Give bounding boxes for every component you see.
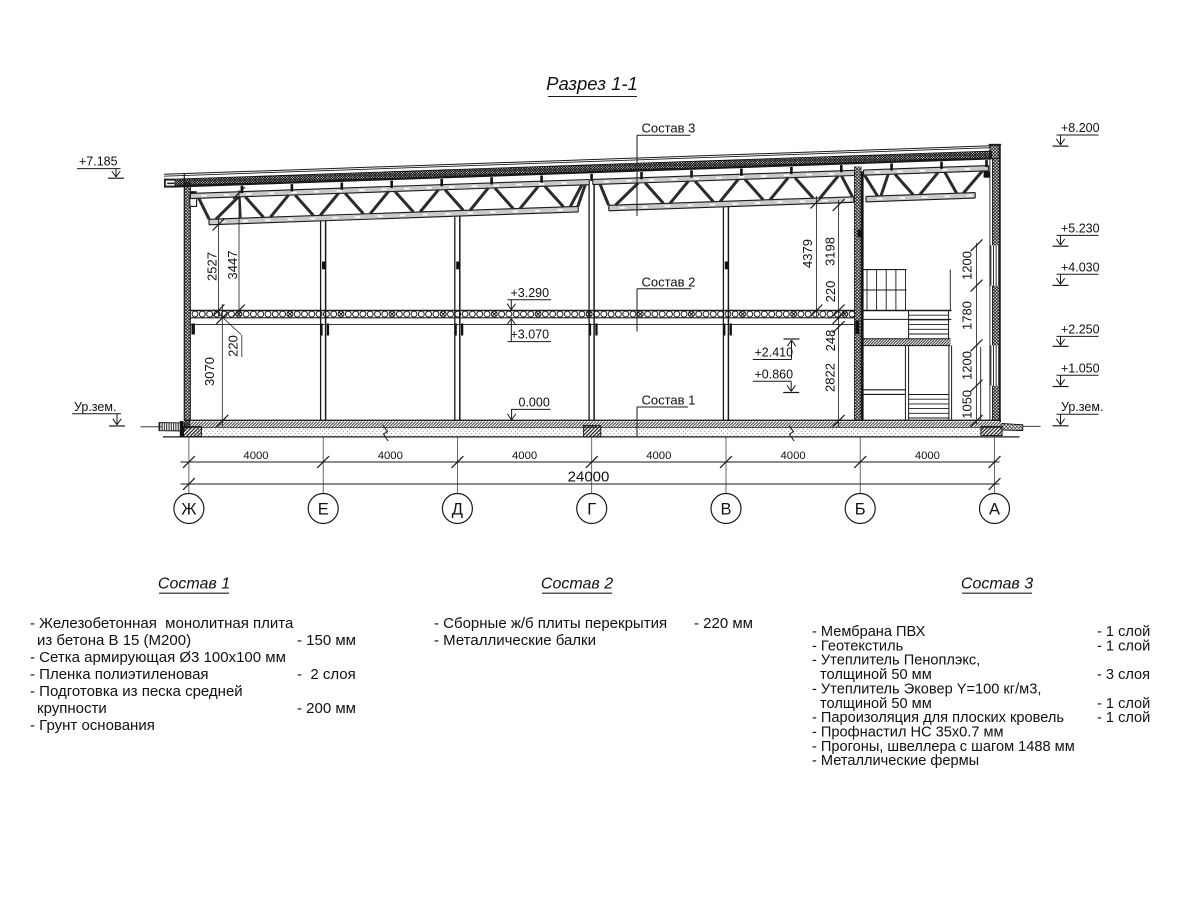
svg-text:4379: 4379 [800,239,815,268]
svg-text:+5.230: +5.230 [1061,221,1100,235]
svg-text:1200: 1200 [960,351,975,380]
svg-text:4000: 4000 [512,450,537,462]
svg-text:Состав 3: Состав 3 [961,576,1033,593]
svg-text:В: В [720,500,731,518]
svg-text:Состав 1: Состав 1 [642,393,696,408]
svg-text:- Металлические балки: - Металлические балки [434,632,596,649]
svg-text:- 3 слоя: - 3 слоя [1097,667,1150,683]
svg-text:А: А [989,500,1000,518]
svg-text:2527: 2527 [205,252,220,281]
svg-text:220: 220 [823,281,838,303]
svg-text:+3.290: +3.290 [511,286,550,300]
svg-text:- 220 мм: - 220 мм [694,615,753,632]
svg-text:Состав 2: Состав 2 [541,576,613,593]
svg-text:- Грунт основания: - Грунт основания [30,717,155,734]
svg-text:Состав 1: Состав 1 [158,576,230,593]
svg-text:4000: 4000 [781,450,806,462]
svg-text:3447: 3447 [225,251,240,280]
svg-text:1780: 1780 [960,301,975,330]
svg-text:1050: 1050 [960,390,975,419]
svg-text:- Сетка армирующая Ø3 100х100: - Сетка армирующая Ø3 100х100 мм [30,649,286,666]
svg-text:из бетона В 15 (М200): из бетона В 15 (М200) [37,632,191,649]
svg-text:4000: 4000 [243,450,268,462]
svg-text:- 1 слой: - 1 слой [1097,710,1150,726]
svg-text:+7.185: +7.185 [79,155,118,169]
svg-text:4000: 4000 [915,450,940,462]
svg-text:Ур.зем.: Ур.зем. [1061,400,1103,414]
svg-text:крупности: крупности [37,700,107,717]
svg-text:- Подготовка из песка средней: - Подготовка из песка средней [30,683,243,700]
svg-text:Д: Д [452,500,463,518]
svg-text:+3.070: +3.070 [511,328,550,342]
svg-text:Ж: Ж [181,500,197,518]
svg-text:Состав 2: Состав 2 [642,275,696,290]
svg-text:+1.050: +1.050 [1061,361,1100,375]
svg-text:Б: Б [855,500,866,518]
svg-text:4000: 4000 [646,450,671,462]
svg-text:- 2 слоя: - 2 слоя [297,666,356,683]
svg-text:+8.200: +8.200 [1061,121,1100,135]
svg-text:1200: 1200 [960,251,975,280]
svg-text:+4.030: +4.030 [1061,260,1100,274]
svg-text:- 1 слой: - 1 слой [1097,638,1150,654]
svg-text:2822: 2822 [823,363,838,392]
svg-text:3070: 3070 [202,357,217,386]
svg-text:- 200 мм: - 200 мм [297,700,356,717]
svg-text:+0.860: +0.860 [755,367,794,381]
svg-text:0.000: 0.000 [519,395,550,409]
svg-text:Ур.зем.: Ур.зем. [74,400,116,414]
svg-text:Разрез 1-1: Разрез 1-1 [546,73,638,94]
svg-text:Состав 3: Состав 3 [642,121,696,136]
svg-text:- Металлические фермы: - Металлические фермы [812,753,979,769]
svg-text:+2.410: +2.410 [755,346,794,360]
svg-text:- Сборные ж/б плиты перекрытия: - Сборные ж/б плиты перекрытия [434,615,667,632]
svg-text:- Пленка полиэтиленовая: - Пленка полиэтиленовая [30,666,209,683]
svg-text:4000: 4000 [378,450,403,462]
svg-text:Г: Г [587,500,596,518]
svg-text:- Железобетонная монолитная п: - Железобетонная монолитная плита [30,615,294,632]
svg-text:3198: 3198 [823,237,838,266]
svg-text:- 150 мм: - 150 мм [297,632,356,649]
svg-text:220: 220 [226,335,241,357]
svg-text:248: 248 [823,330,838,352]
svg-text:+2.250: +2.250 [1061,322,1100,336]
svg-text:Е: Е [318,500,329,518]
svg-text:24000: 24000 [568,469,610,486]
